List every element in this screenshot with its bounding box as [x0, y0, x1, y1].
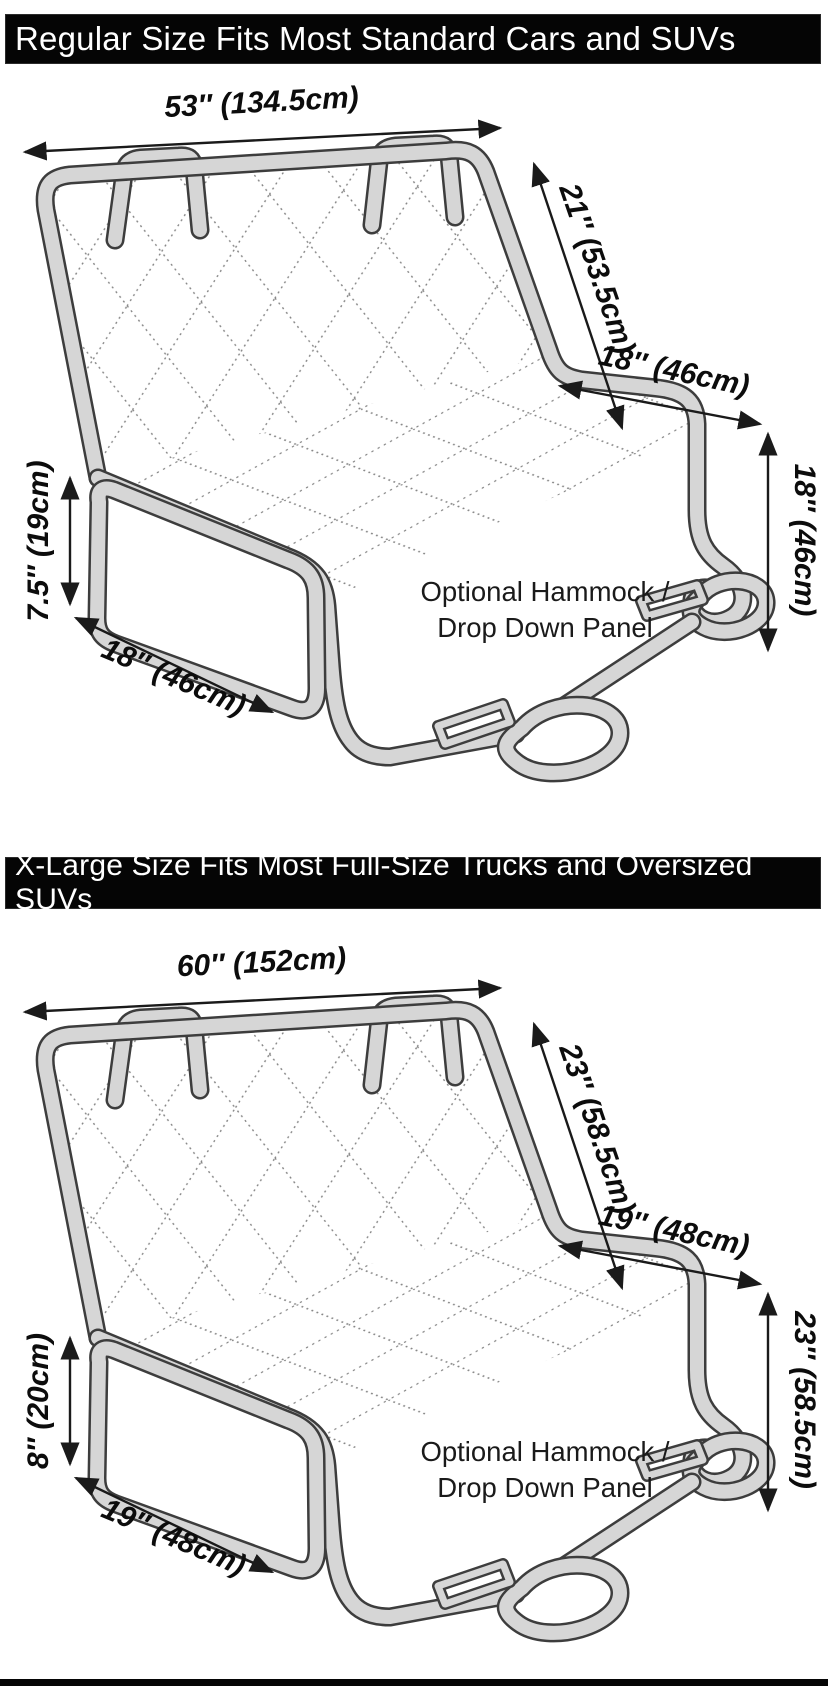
hammock-note-line1: Optional Hammock / [420, 576, 669, 607]
width-label: 53″ (134.5cm) [164, 85, 360, 124]
bottom-strap-loop [506, 705, 620, 773]
hammock-note-line2: Drop Down Panel [437, 612, 653, 643]
side-drop-label: 23″ (58.5cm) [788, 1310, 821, 1489]
xlarge-size-diagram: 60″ (152cm) 23″ (58.5cm) 19″ (48cm) 23″ … [0, 945, 828, 1705]
regular-size-banner: Regular Size Fits Most Standard Cars and… [5, 14, 821, 64]
hammock-note-line1: Optional Hammock / [420, 1436, 669, 1467]
back-height-label: 23″ (58.5cm) [552, 1039, 641, 1219]
side-drop-label: 18″ (46cm) [788, 464, 821, 617]
flap-height-label: 7.5″ (19cm) [22, 460, 55, 621]
back-height-label: 21″ (53.5cm) [552, 179, 641, 359]
flap-height-label: 8″ (20cm) [22, 1333, 55, 1469]
regular-size-diagram: 53″ (134.5cm) 21″ (53.5cm) 18″ (46cm) 18… [0, 85, 828, 845]
bottom-strap-loop [506, 1565, 620, 1633]
xlarge-size-banner: X-Large Size Fits Most Full-Size Trucks … [5, 857, 821, 909]
xlarge-size-banner-label: X-Large Size Fits Most Full-Size Trucks … [15, 849, 820, 917]
hammock-note-line2: Drop Down Panel [437, 1472, 653, 1503]
bottom-banner-edge [0, 1679, 828, 1686]
regular-size-banner-label: Regular Size Fits Most Standard Cars and… [15, 20, 736, 58]
width-label: 60″ (152cm) [176, 945, 347, 983]
